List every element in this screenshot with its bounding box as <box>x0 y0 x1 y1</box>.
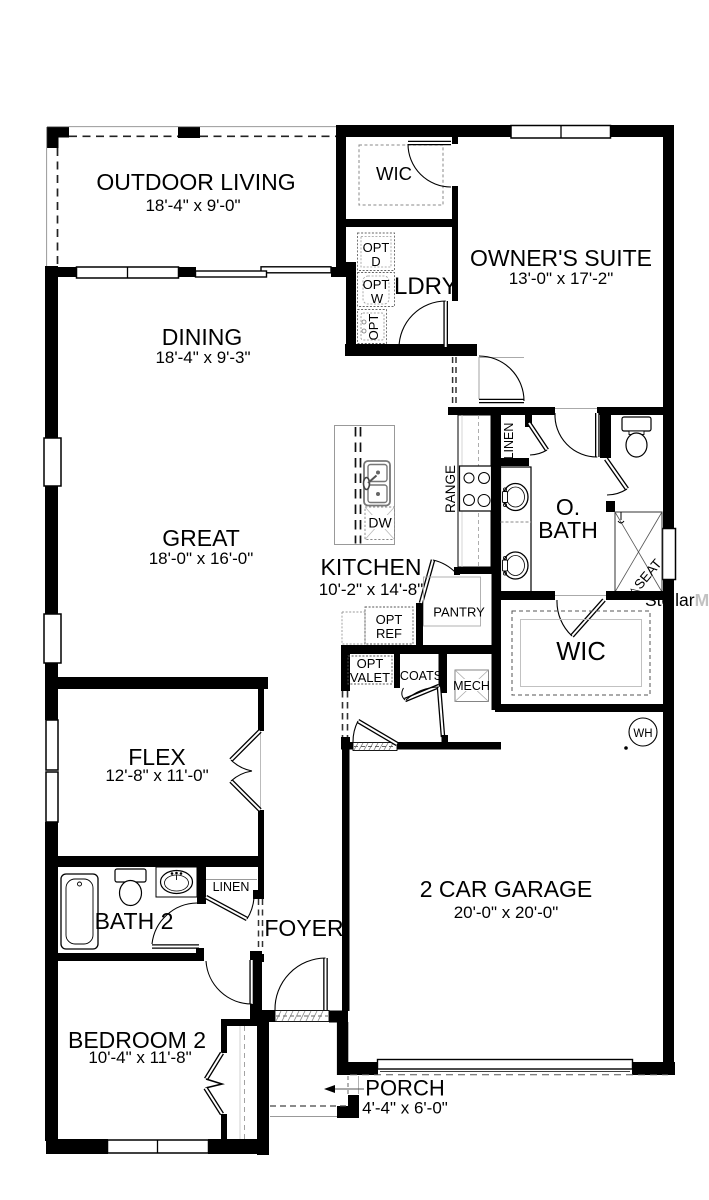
svg-text:D: D <box>371 254 380 269</box>
svg-text:PORCH: PORCH <box>365 1076 444 1101</box>
svg-text:RANGE: RANGE <box>443 465 458 513</box>
svg-text:20'-0" x 20'-0": 20'-0" x 20'-0" <box>454 903 559 922</box>
svg-text:PANTRY: PANTRY <box>433 605 485 620</box>
svg-text:OWNER'S SUITE: OWNER'S SUITE <box>470 245 652 271</box>
svg-text:LINEN: LINEN <box>502 423 516 460</box>
svg-text:WH: WH <box>633 728 652 740</box>
svg-text:OUTDOOR LIVING: OUTDOOR LIVING <box>96 169 295 195</box>
svg-text:18'-4" x 9'-0": 18'-4" x 9'-0" <box>145 196 240 215</box>
svg-text:10'-4" x 11'-8": 10'-4" x 11'-8" <box>88 1048 191 1067</box>
svg-text:BATH 2: BATH 2 <box>95 908 174 934</box>
svg-text:REF: REF <box>376 626 402 641</box>
svg-text:KITCHEN: KITCHEN <box>321 554 422 580</box>
svg-text:DW: DW <box>368 515 392 531</box>
svg-text:LDRY: LDRY <box>394 273 458 300</box>
svg-text:OPT: OPT <box>357 656 384 671</box>
svg-text:LINEN: LINEN <box>213 880 250 894</box>
svg-text:WIC: WIC <box>376 163 412 184</box>
svg-text:4'-4" x 6'-0": 4'-4" x 6'-0" <box>362 1099 448 1118</box>
svg-text:OPT: OPT <box>366 314 381 341</box>
svg-text:WIC: WIC <box>556 638 606 666</box>
svg-text:OPT: OPT <box>363 277 390 292</box>
svg-text:GREAT: GREAT <box>162 525 240 551</box>
svg-text:2 CAR GARAGE: 2 CAR GARAGE <box>420 876 593 902</box>
svg-text:10'-2" x 14'-8": 10'-2" x 14'-8" <box>319 580 424 599</box>
svg-text:COATS: COATS <box>400 669 442 683</box>
svg-text:VALET: VALET <box>350 670 390 685</box>
svg-text:BATH: BATH <box>538 517 598 543</box>
svg-text:12'-8" x 11'-0": 12'-8" x 11'-0" <box>105 766 208 785</box>
svg-text:13'-0" x 17'-2": 13'-0" x 17'-2" <box>509 269 614 288</box>
svg-text:DINING: DINING <box>162 324 243 350</box>
svg-text:OPT: OPT <box>376 612 403 627</box>
svg-text:MECH: MECH <box>453 679 490 693</box>
svg-text:OPT: OPT <box>363 240 390 255</box>
svg-text:StellarMLS: StellarMLS <box>645 590 709 610</box>
svg-text:W: W <box>371 291 384 306</box>
svg-text:18'-0" x 16'-0": 18'-0" x 16'-0" <box>149 549 254 568</box>
svg-text:FOYER: FOYER <box>264 915 343 941</box>
svg-text:18'-4" x 9'-3": 18'-4" x 9'-3" <box>155 348 250 367</box>
